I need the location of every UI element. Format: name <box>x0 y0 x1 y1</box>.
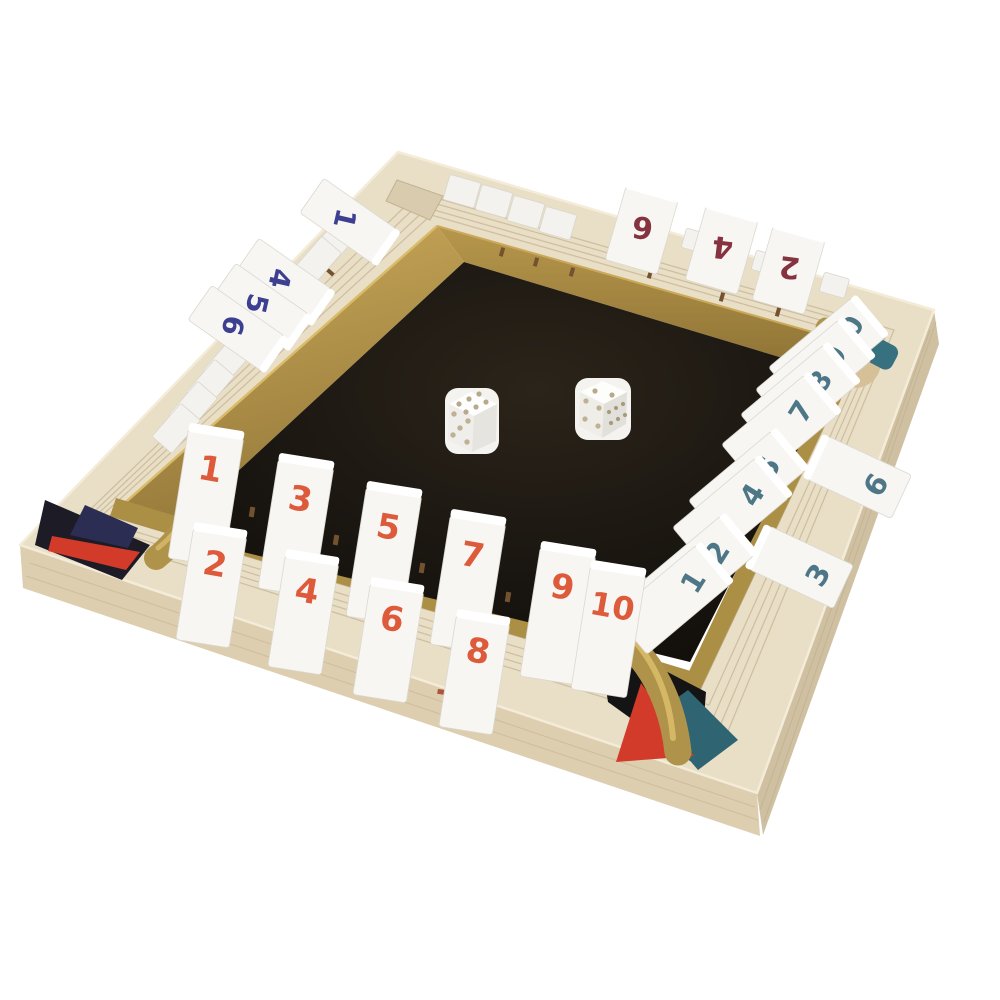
shut-the-box-board: 6 4 2 1 <box>0 0 1000 1000</box>
die-right <box>575 378 631 440</box>
tile-far-2-label: 2 <box>777 248 802 285</box>
tile-front-10-label: 10 <box>587 584 637 629</box>
photo-stage: 6 4 2 1 <box>0 0 1000 1000</box>
tile-far-4-label: 4 <box>710 228 735 265</box>
tile-far-6-label: 6 <box>630 208 655 245</box>
die-left <box>445 388 499 454</box>
